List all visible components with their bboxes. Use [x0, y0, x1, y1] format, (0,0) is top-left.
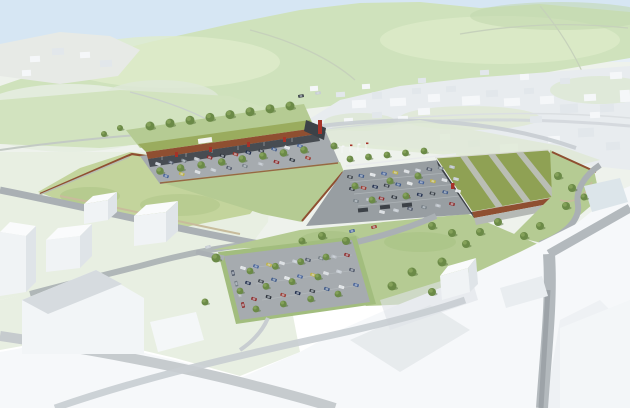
tree-highlight	[463, 241, 467, 245]
tree-highlight	[247, 268, 250, 271]
tree-highlight	[266, 105, 271, 110]
tree-highlight	[246, 108, 251, 113]
town-block	[540, 96, 554, 105]
tree-highlight	[477, 229, 481, 233]
tree-highlight	[315, 274, 318, 277]
tree-highlight	[429, 289, 433, 293]
tree-highlight	[280, 150, 284, 154]
entrance-pylon	[318, 120, 322, 134]
tree-highlight	[118, 125, 121, 128]
town-block	[520, 74, 529, 80]
town-block	[100, 60, 112, 68]
shop-sign-red	[283, 137, 286, 142]
tree-highlight	[335, 291, 338, 294]
tree-highlight	[323, 254, 326, 257]
tree-highlight	[403, 150, 406, 153]
tree-highlight	[239, 156, 243, 160]
town-block	[418, 78, 426, 83]
town-block	[30, 56, 40, 63]
town-block	[80, 52, 90, 59]
tree-highlight	[237, 288, 240, 291]
town-block	[352, 100, 366, 109]
town-block	[560, 104, 578, 114]
town-block	[446, 86, 456, 93]
town-block	[524, 88, 534, 95]
tree-highlight	[308, 296, 311, 299]
tree-highlight	[286, 102, 291, 107]
town-block	[486, 90, 498, 98]
flag	[366, 143, 368, 145]
massing-cube	[134, 212, 166, 246]
tree-highlight	[429, 223, 433, 227]
town-block	[578, 128, 594, 138]
tree-highlight	[387, 178, 391, 182]
town-block	[590, 112, 600, 119]
town-block	[620, 90, 630, 103]
massing-cube	[26, 226, 36, 292]
slope-texture	[384, 232, 456, 252]
town-block	[418, 108, 430, 116]
tree-highlight	[438, 258, 443, 263]
tree-highlight	[569, 185, 573, 189]
town-block	[52, 48, 64, 56]
tree-highlight	[298, 259, 301, 262]
tree-highlight	[369, 197, 373, 201]
shop-sign-red	[247, 142, 250, 147]
render-canvas	[0, 0, 630, 408]
town-block	[22, 70, 31, 76]
car-glass	[299, 95, 302, 97]
town-block	[336, 92, 345, 97]
flag	[342, 146, 344, 148]
town-block	[428, 94, 440, 103]
tree-highlight	[202, 299, 206, 303]
tree-highlight	[581, 194, 585, 198]
tree-highlight	[281, 301, 284, 304]
tree-highlight	[301, 147, 305, 151]
tree-highlight	[563, 203, 567, 207]
tree-highlight	[299, 238, 303, 242]
tree-highlight	[226, 111, 231, 116]
tree-highlight	[319, 233, 323, 237]
tree-highlight	[206, 114, 211, 119]
tree-highlight	[347, 156, 350, 159]
shop-sign-red	[209, 147, 212, 152]
bigbox-red-sign	[451, 183, 455, 189]
town-block	[504, 98, 520, 107]
massing-cube	[46, 236, 80, 272]
town-block	[480, 70, 489, 75]
shop-sign-red	[175, 152, 178, 157]
tree-highlight	[157, 168, 161, 172]
town-block	[560, 78, 570, 85]
massing-cube	[84, 200, 108, 224]
tree-highlight	[537, 223, 541, 227]
tree-highlight	[178, 165, 182, 169]
tree-highlight	[212, 254, 217, 259]
town-block	[412, 88, 421, 94]
town-block	[584, 94, 596, 102]
tree-highlight	[555, 173, 559, 177]
town-block	[372, 112, 382, 119]
tree-highlight	[263, 283, 266, 286]
tree-highlight	[384, 152, 387, 155]
tree-highlight	[146, 122, 151, 127]
architectural-rendering	[0, 0, 630, 408]
tree-highlight	[352, 183, 356, 187]
tree-highlight	[166, 119, 171, 124]
town-block	[600, 104, 614, 113]
town-block	[362, 84, 370, 89]
tree-highlight	[289, 279, 292, 282]
tree-highlight	[388, 282, 393, 287]
tree-highlight	[421, 148, 424, 151]
tree-highlight	[260, 153, 264, 157]
tree-highlight	[273, 263, 276, 266]
tree-highlight	[102, 131, 105, 134]
flag	[350, 145, 352, 147]
tree-highlight	[415, 173, 419, 177]
town-block	[610, 72, 622, 80]
tree-highlight	[219, 159, 223, 163]
tree-highlight	[343, 238, 347, 242]
tree-highlight	[449, 230, 453, 234]
town-block	[310, 86, 318, 91]
town-block	[390, 98, 406, 107]
town-block	[372, 92, 382, 100]
tree-highlight	[186, 116, 191, 121]
massing-cube	[0, 232, 26, 296]
tree-highlight	[408, 268, 413, 273]
tree-highlight	[253, 306, 256, 309]
car-glass	[316, 92, 319, 94]
tree-highlight	[521, 233, 525, 237]
tree-highlight	[331, 143, 335, 147]
tree-highlight	[366, 154, 369, 157]
tree-highlight	[495, 219, 499, 223]
town-block	[462, 96, 480, 106]
flag	[358, 144, 360, 146]
tree-highlight	[198, 162, 202, 166]
town-block	[530, 116, 542, 124]
town-block	[606, 142, 620, 151]
tree-highlight	[403, 193, 407, 197]
